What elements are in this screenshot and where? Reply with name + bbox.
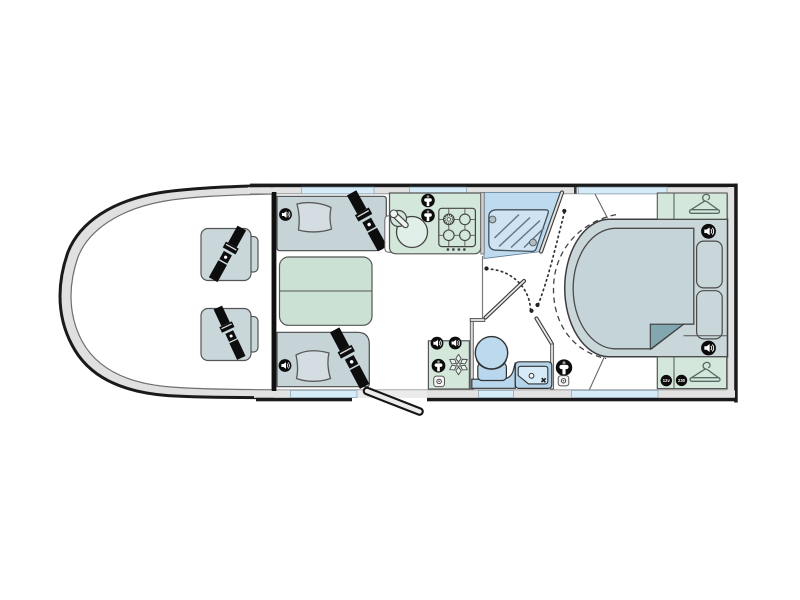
- svg-text:12v: 12v: [663, 378, 671, 383]
- svg-text:230: 230: [678, 378, 686, 383]
